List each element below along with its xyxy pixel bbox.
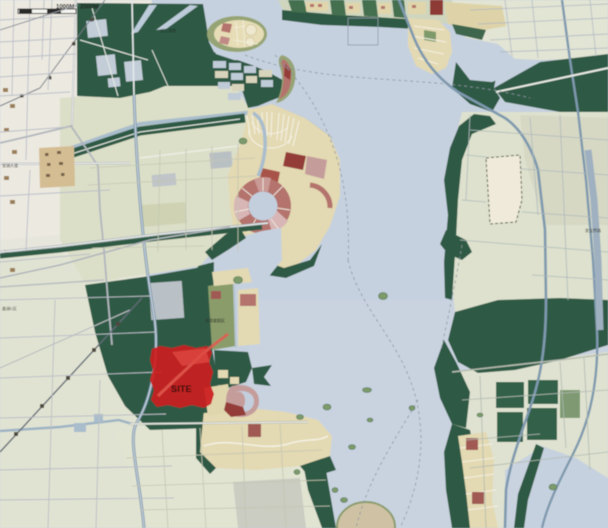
svg-text:SITE: SITE	[171, 384, 192, 394]
svg-text:发宝界路: 发宝界路	[585, 227, 601, 233]
svg-text:蠡湖C区: 蠡湖C区	[2, 305, 17, 311]
svg-text:宝湖大道: 宝湖大道	[2, 162, 18, 168]
svg-text:旅游度假区: 旅游度假区	[205, 317, 225, 323]
svg-text:山江湿地: 山江湿地	[160, 27, 176, 33]
svg-text:2000M: 2000M	[80, 5, 98, 11]
